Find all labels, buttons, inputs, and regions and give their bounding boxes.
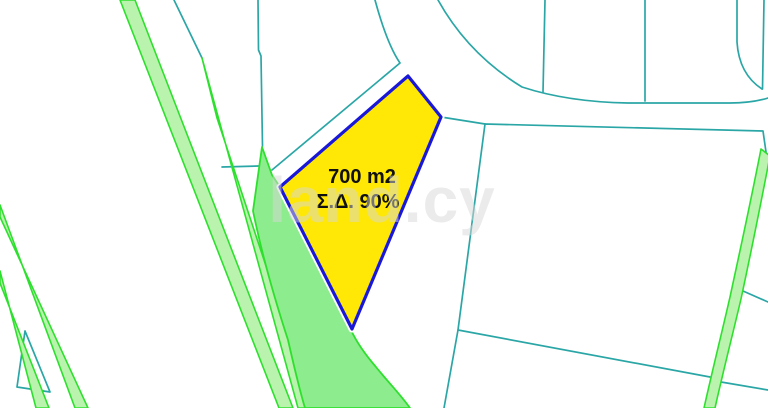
watermark-text: land.cy	[268, 164, 496, 236]
parcel-boundary-line	[763, 0, 765, 89]
road-curve-boundary	[438, 0, 768, 103]
narrow-green-strip-right	[704, 149, 768, 408]
parcel-boundary-line	[441, 117, 485, 124]
parcel-boundary-line	[743, 291, 768, 302]
parcel-boundary-line	[222, 166, 259, 167]
parcel-boundary-line	[174, 0, 202, 58]
map-canvas: 700 m2 Σ.Δ. 90% land.cy	[0, 0, 768, 408]
parcel-boundary-line	[543, 0, 545, 92]
parcel-boundary-line	[721, 382, 768, 390]
cadastral-map: 700 m2 Σ.Δ. 90% land.cy	[0, 0, 768, 408]
parcel-boundary-line	[258, 0, 263, 146]
parcel-boundary-line	[458, 330, 710, 377]
road-corner-boundary	[737, 0, 762, 89]
